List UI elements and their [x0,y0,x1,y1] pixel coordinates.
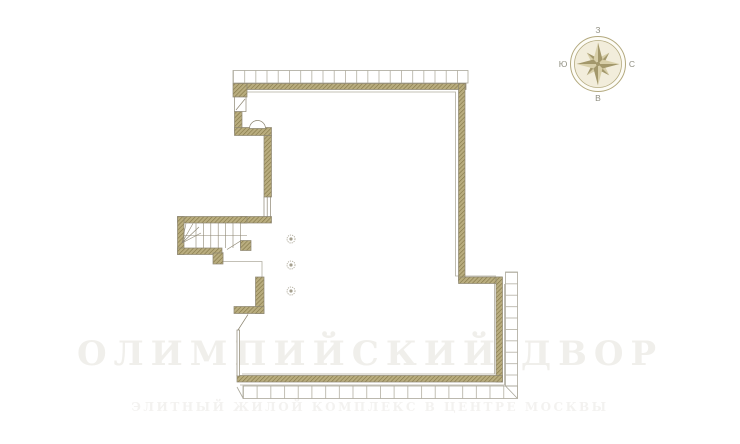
door-swing-stair [227,241,241,250]
compass-label-north: С [629,59,635,69]
column-marker [287,235,295,243]
glazing-lower-left [237,330,240,376]
terrace-bands [233,71,518,399]
terrace-band-right [506,272,518,386]
stair-winder-fan [182,224,201,244]
door-swing-lower-left [238,315,248,331]
compass-label-west: З [595,25,600,35]
column-marker [287,287,295,295]
compass-label-south: Ю [559,59,568,69]
terrace-band-bottom [243,386,518,399]
terrace-band-top [233,71,468,84]
wall-left-mid [264,136,272,198]
wall-stair-top [178,217,248,224]
wall-jog-right [459,277,503,284]
wall-bottom [237,376,503,383]
column-markers [287,235,295,295]
compass-rose-icon: З С В Ю [559,25,635,103]
floor-plan-drawing: З С В Ю [0,0,740,444]
wall-top [237,84,466,90]
wall-stair-step [213,253,223,264]
column-marker [287,261,295,269]
walls [178,84,503,383]
drawing-canvas: ОЛИМПИЙСКИЙ ДВОР ЭЛИТНЫЙ ЖИЛОЙ КОМПЛЕКС … [0,0,740,444]
wall-mid-left-horizontal [234,307,264,314]
wall-lower-right [496,277,503,382]
staircase [182,223,247,248]
wall-niche-arc [250,121,266,129]
wall-right [459,84,466,282]
band-left-end-diagonal [237,387,243,398]
wall-pier-top-left [233,84,247,98]
wall-door-block [241,241,252,251]
compass-label-east: В [595,93,601,103]
